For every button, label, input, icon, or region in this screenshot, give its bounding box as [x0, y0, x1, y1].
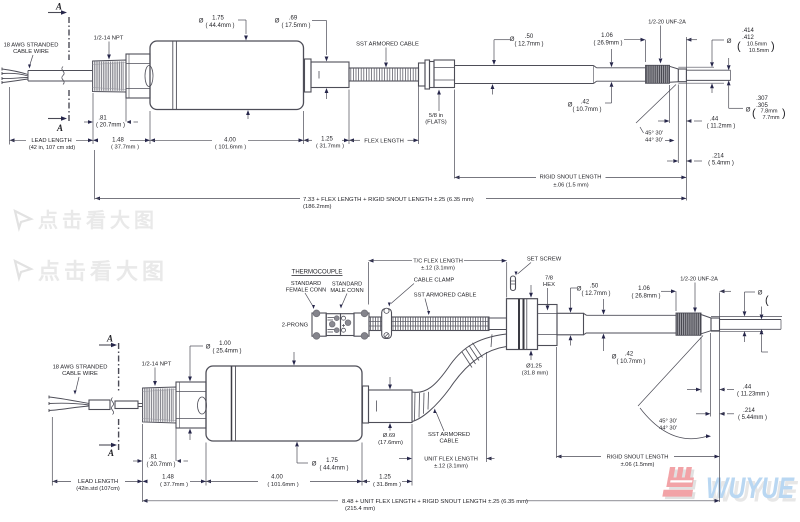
- svg-text:1.75: 1.75: [212, 16, 224, 22]
- svg-text:FEMALE CONN: FEMALE CONN: [286, 288, 326, 294]
- svg-text:10.5mm: 10.5mm: [749, 48, 770, 54]
- svg-text:.81: .81: [149, 455, 158, 461]
- svg-text:Ø1.25: Ø1.25: [526, 364, 542, 370]
- svg-text:7.33 + FLEX LENGTH + RIGID SNO: 7.33 + FLEX LENGTH + RIGID SNOUT LENGTH …: [303, 197, 474, 203]
- svg-text:( 31.8mm ): ( 31.8mm ): [373, 482, 401, 488]
- svg-text:45° 30': 45° 30': [659, 419, 677, 425]
- svg-text:点击看大图: 点击看大图: [38, 259, 168, 284]
- svg-text:1/2-14 NPT: 1/2-14 NPT: [94, 36, 124, 42]
- svg-text:1.06: 1.06: [638, 286, 650, 292]
- svg-text:( 11.2mm ): ( 11.2mm ): [707, 124, 736, 130]
- svg-text:±.06 (1.5 mm): ±.06 (1.5 mm): [553, 183, 588, 189]
- svg-text:( 17.5mm ): ( 17.5mm ): [281, 23, 310, 29]
- svg-text:4.00: 4.00: [224, 138, 236, 144]
- svg-text:44° 30': 44° 30': [659, 426, 677, 432]
- svg-text:( 10.7mm ): ( 10.7mm ): [616, 359, 645, 365]
- svg-text:.412: .412: [742, 35, 754, 41]
- svg-text:HEX: HEX: [543, 282, 555, 288]
- svg-text:±.06 (1.5mm): ±.06 (1.5mm): [621, 462, 655, 468]
- svg-text:SST ARMORED: SST ARMORED: [428, 432, 470, 438]
- svg-text:Ø: Ø: [199, 18, 204, 25]
- svg-text:±.12 (3.1mm): ±.12 (3.1mm): [421, 266, 455, 272]
- svg-text:A: A: [55, 2, 62, 12]
- svg-text:(215.4 mm): (215.4 mm): [345, 506, 375, 512]
- svg-text:( 5.44mm ): ( 5.44mm ): [738, 415, 767, 421]
- svg-text:(FLATS): (FLATS): [425, 120, 447, 126]
- svg-text:.44: .44: [743, 385, 752, 391]
- svg-text:1/2-14 NPT: 1/2-14 NPT: [142, 362, 172, 368]
- svg-text:Ø: Ø: [758, 290, 763, 297]
- svg-text:.69: .69: [289, 16, 298, 22]
- svg-text:.214: .214: [712, 154, 724, 160]
- svg-text:1.48: 1.48: [112, 138, 124, 144]
- svg-text:( 12.7mm ): ( 12.7mm ): [514, 42, 543, 48]
- svg-text:RIGID SNOUT LENGTH: RIGID SNOUT LENGTH: [607, 455, 669, 461]
- svg-text:.50: .50: [525, 34, 534, 40]
- svg-text:( 101.6mm ): ( 101.6mm ): [267, 482, 298, 488]
- svg-text:UNIT FLEX LENGTH: UNIT FLEX LENGTH: [424, 457, 478, 463]
- svg-text:CABLE WIRE: CABLE WIRE: [62, 371, 98, 377]
- svg-text:.414: .414: [742, 28, 754, 34]
- svg-text:( 31.7mm ): ( 31.7mm ): [316, 144, 344, 150]
- svg-text:1.25: 1.25: [379, 475, 391, 481]
- svg-text:4.00: 4.00: [271, 475, 283, 481]
- svg-text:LEAD LENGTH: LEAD LENGTH: [78, 479, 118, 485]
- svg-text:(42in.std (107cm): (42in.std (107cm): [76, 486, 120, 492]
- svg-text:( 12.7mm ): ( 12.7mm ): [581, 291, 610, 297]
- svg-text:( 44.4mm ): ( 44.4mm ): [319, 466, 348, 472]
- svg-text:10.5mm: 10.5mm: [747, 42, 768, 48]
- svg-text:.307: .307: [756, 96, 768, 102]
- svg-text:1.06: 1.06: [601, 33, 613, 39]
- svg-text:LEAD LENGTH: LEAD LENGTH: [31, 138, 71, 144]
- svg-text:(: (: [765, 295, 769, 307]
- svg-text:1.00: 1.00: [219, 341, 231, 347]
- svg-text:SET SCREW: SET SCREW: [527, 257, 562, 263]
- svg-text:.81: .81: [98, 116, 107, 122]
- svg-text:SST ARMORED CABLE: SST ARMORED CABLE: [414, 293, 477, 299]
- svg-text:( 44.4mm ): ( 44.4mm ): [205, 23, 234, 29]
- svg-text:Ø: Ø: [312, 461, 317, 468]
- svg-text:( 101.6mm ): ( 101.6mm ): [215, 144, 246, 150]
- svg-text:Ø: Ø: [275, 18, 280, 25]
- svg-text:(186.2mm): (186.2mm): [303, 204, 332, 210]
- svg-text:): ): [782, 108, 786, 120]
- svg-text:45° 30': 45° 30': [645, 131, 663, 137]
- svg-text:RIGID SNOUT LENGTH: RIGID SNOUT LENGTH: [540, 175, 602, 181]
- svg-text:A: A: [56, 123, 63, 133]
- svg-text:7.8mm: 7.8mm: [760, 109, 777, 115]
- svg-text:1/2-20 UNF-2A: 1/2-20 UNF-2A: [648, 20, 686, 26]
- svg-text:Ø.69: Ø.69: [383, 433, 396, 439]
- svg-text:(42 in, 107 cm std): (42 in, 107 cm std): [29, 145, 75, 151]
- svg-text:): ): [771, 41, 775, 53]
- svg-text:( 5.4mm ): ( 5.4mm ): [708, 161, 734, 167]
- svg-text:Ø: Ø: [727, 38, 732, 45]
- svg-text:( 26.9mm ): ( 26.9mm ): [593, 41, 622, 47]
- svg-text:( 37.7mm ): ( 37.7mm ): [111, 144, 139, 150]
- svg-text:5/8 in: 5/8 in: [429, 113, 443, 119]
- svg-text:A: A: [106, 334, 113, 344]
- svg-text:Ø: Ø: [746, 107, 751, 114]
- svg-text:2-PRONG: 2-PRONG: [282, 323, 309, 329]
- svg-text:A: A: [107, 448, 114, 458]
- svg-text:SST ARMORED CABLE: SST ARMORED CABLE: [356, 42, 419, 48]
- svg-text:( 25.4mm ): ( 25.4mm ): [212, 349, 241, 355]
- svg-text:18 AWG STRANDED: 18 AWG STRANDED: [53, 365, 108, 371]
- svg-text:MALE CONN: MALE CONN: [330, 288, 363, 294]
- svg-text:Ø: Ø: [206, 344, 211, 351]
- svg-text:点击看大图: 点击看大图: [38, 208, 158, 232]
- svg-text:CABLE CLAMP: CABLE CLAMP: [414, 278, 455, 284]
- svg-text:(: (: [752, 108, 756, 120]
- svg-text:1.48: 1.48: [162, 475, 174, 481]
- svg-text:1.25: 1.25: [321, 137, 333, 143]
- svg-text:7.7mm: 7.7mm: [762, 115, 779, 121]
- svg-text:THERMOCOUPLE: THERMOCOUPLE: [292, 270, 343, 276]
- svg-text:( 26.8mm ): ( 26.8mm ): [631, 294, 660, 300]
- svg-text:( 11.23mm ): ( 11.23mm ): [737, 392, 769, 398]
- svg-text:T/C FLEX LENGTH: T/C FLEX LENGTH: [413, 259, 463, 265]
- svg-text:.42: .42: [625, 352, 634, 358]
- svg-text:(: (: [737, 41, 741, 53]
- svg-text:.44: .44: [710, 117, 719, 123]
- svg-text:( 20.7mm ): ( 20.7mm ): [146, 462, 175, 468]
- svg-text:FLEX LENGTH: FLEX LENGTH: [364, 138, 404, 144]
- svg-text:STANDARD: STANDARD: [291, 281, 321, 287]
- svg-text:( 10.7mm ): ( 10.7mm ): [572, 107, 601, 113]
- svg-text:1/2-20 UNF-2A: 1/2-20 UNF-2A: [680, 277, 718, 283]
- svg-text:44° 30': 44° 30': [645, 138, 663, 144]
- svg-text:7/8: 7/8: [545, 276, 553, 282]
- svg-text:±.12 (3.1mm): ±.12 (3.1mm): [434, 464, 468, 470]
- svg-text:18 AWG STRANDED: 18 AWG STRANDED: [4, 43, 59, 49]
- svg-text:8.48 + UNIT FLEX LENGTH + RIGI: 8.48 + UNIT FLEX LENGTH + RIGID SNOUT LE…: [342, 499, 528, 505]
- svg-text:.42: .42: [581, 100, 590, 106]
- svg-text:( 37.7mm ): ( 37.7mm ): [160, 482, 188, 488]
- svg-text:CABLE: CABLE: [439, 439, 458, 445]
- svg-text:(17.6mm): (17.6mm): [378, 440, 403, 446]
- svg-text:STANDARD: STANDARD: [332, 282, 362, 288]
- svg-text:.50: .50: [590, 284, 599, 290]
- svg-text:(31.8 mm): (31.8 mm): [522, 371, 548, 377]
- svg-text:1.75: 1.75: [326, 458, 338, 464]
- svg-text:( 20.7mm ): ( 20.7mm ): [96, 123, 125, 129]
- svg-text:.214: .214: [743, 408, 755, 414]
- svg-text:CABLE WIRE: CABLE WIRE: [13, 49, 49, 55]
